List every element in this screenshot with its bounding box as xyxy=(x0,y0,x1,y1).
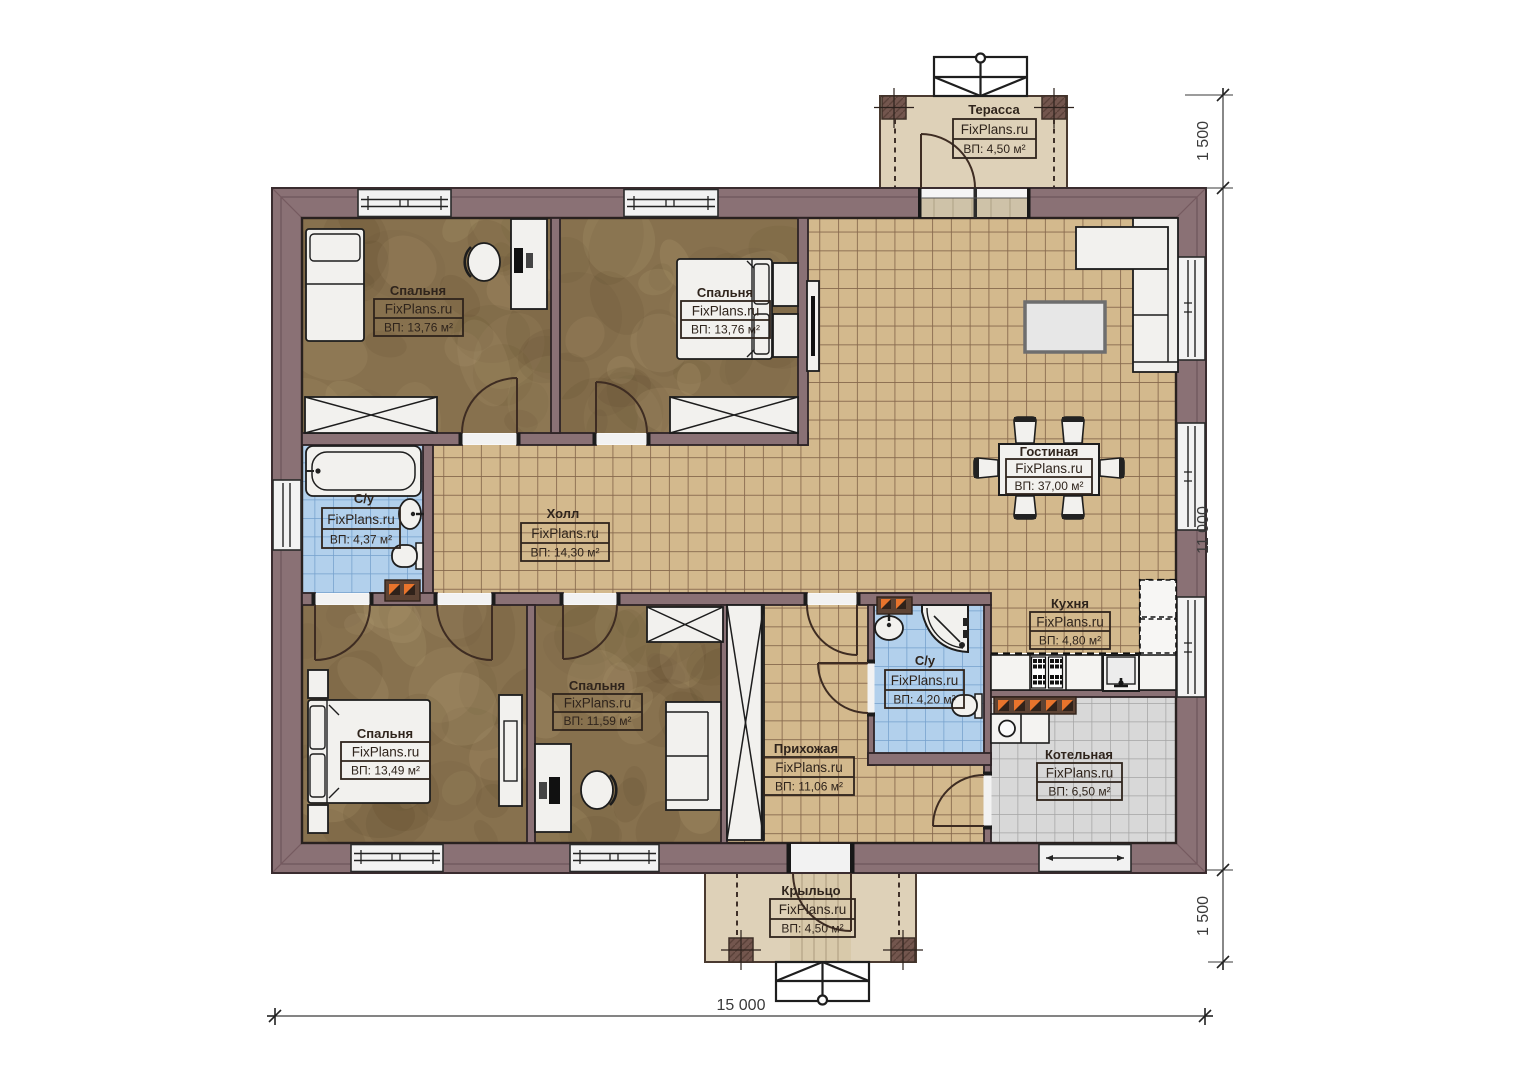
svg-text:ВП: 13,49 м²: ВП: 13,49 м² xyxy=(351,764,420,778)
svg-text:Котельная: Котельная xyxy=(1045,747,1113,762)
svg-text:ВП: 11,06 м²: ВП: 11,06 м² xyxy=(775,780,843,794)
svg-text:Терасса: Терасса xyxy=(968,102,1020,117)
svg-text:ВП: 4,50 м²: ВП: 4,50 м² xyxy=(963,142,1025,156)
svg-text:FixPlans.ru: FixPlans.ru xyxy=(775,760,843,775)
svg-text:FixPlans.ru: FixPlans.ru xyxy=(779,902,847,917)
svg-text:ВП: 14,30 м²: ВП: 14,30 м² xyxy=(531,546,600,560)
svg-text:Спальня: Спальня xyxy=(357,726,413,741)
svg-text:Прихожая: Прихожая xyxy=(774,741,838,756)
svg-text:Крыльцо: Крыльцо xyxy=(781,883,840,898)
svg-text:FixPlans.ru: FixPlans.ru xyxy=(891,673,959,688)
svg-text:ВП: 37,00 м²: ВП: 37,00 м² xyxy=(1015,479,1084,493)
svg-text:1 500: 1 500 xyxy=(1195,896,1212,936)
svg-text:Холл: Холл xyxy=(547,506,580,521)
svg-text:Спальня: Спальня xyxy=(569,678,625,693)
svg-text:Спальня: Спальня xyxy=(390,283,446,298)
svg-text:Спальня: Спальня xyxy=(697,285,753,300)
svg-text:ВП: 4,37 м²: ВП: 4,37 м² xyxy=(330,533,392,547)
svg-text:FixPlans.ru: FixPlans.ru xyxy=(1015,461,1083,476)
svg-text:FixPlans.ru: FixPlans.ru xyxy=(1046,766,1114,781)
svg-text:Кухня: Кухня xyxy=(1051,596,1089,611)
svg-text:ВП: 4,20 м²: ВП: 4,20 м² xyxy=(893,693,955,707)
svg-text:FixPlans.ru: FixPlans.ru xyxy=(1036,615,1104,630)
svg-text:FixPlans.ru: FixPlans.ru xyxy=(327,512,395,527)
svg-text:FixPlans.ru: FixPlans.ru xyxy=(692,304,760,319)
svg-text:Гостиная: Гостиная xyxy=(1020,444,1079,459)
svg-text:ВП: 4,80 м²: ВП: 4,80 м² xyxy=(1039,634,1101,648)
svg-text:ВП: 4,50 м²: ВП: 4,50 м² xyxy=(781,922,843,936)
svg-text:11 000: 11 000 xyxy=(1195,506,1212,554)
svg-text:FixPlans.ru: FixPlans.ru xyxy=(961,122,1029,137)
svg-text:FixPlans.ru: FixPlans.ru xyxy=(352,745,420,760)
svg-text:ВП: 6,50 м²: ВП: 6,50 м² xyxy=(1048,785,1110,799)
svg-text:ВП: 13,76 м²: ВП: 13,76 м² xyxy=(384,321,453,335)
svg-text:С/у: С/у xyxy=(354,491,375,506)
svg-text:С/у: С/у xyxy=(915,653,936,668)
svg-text:ВП: 11,59 м²: ВП: 11,59 м² xyxy=(563,714,631,728)
svg-text:ВП: 13,76 м²: ВП: 13,76 м² xyxy=(691,323,760,337)
svg-text:FixPlans.ru: FixPlans.ru xyxy=(564,696,632,711)
svg-text:15 000: 15 000 xyxy=(717,997,766,1014)
svg-text:1 500: 1 500 xyxy=(1195,121,1212,161)
svg-text:FixPlans.ru: FixPlans.ru xyxy=(385,302,453,317)
svg-text:FixPlans.ru: FixPlans.ru xyxy=(531,526,599,541)
